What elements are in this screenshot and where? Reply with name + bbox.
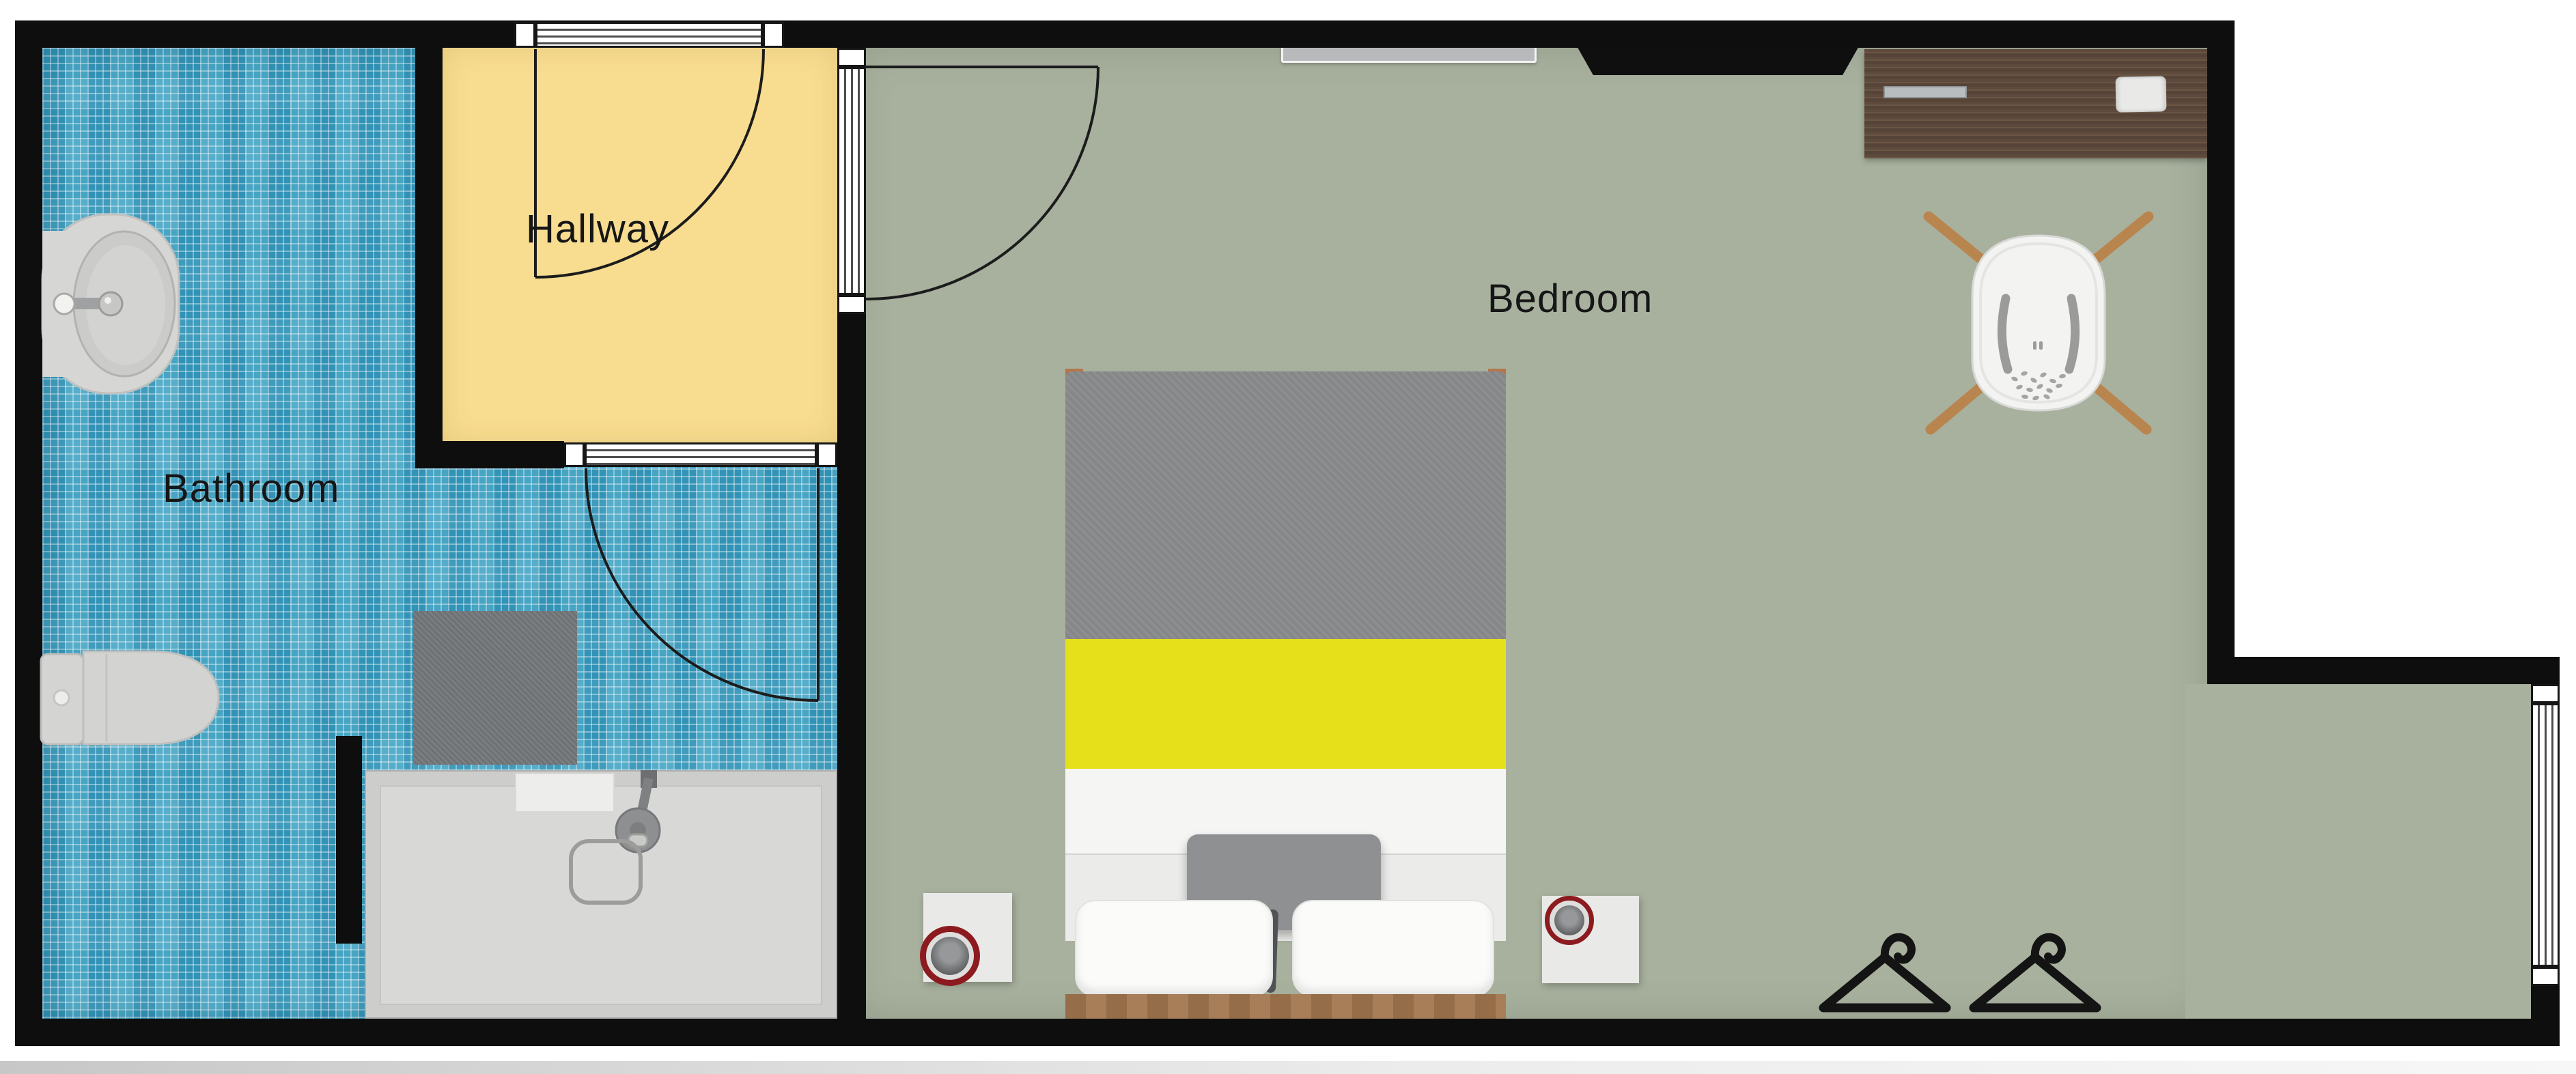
double-bed[interactable] bbox=[1065, 369, 1506, 1019]
wall-hallway-left bbox=[415, 48, 443, 468]
bedroom-door-jamb-top bbox=[837, 48, 866, 67]
right-window-jamb-top bbox=[2531, 684, 2560, 703]
bathroom-door-jamb-right bbox=[817, 442, 837, 467]
wall-tv[interactable] bbox=[1576, 45, 1860, 75]
bed-headboard bbox=[1065, 994, 1506, 1019]
right-window[interactable] bbox=[2531, 703, 2560, 967]
hallway-label: Hallway bbox=[526, 206, 669, 252]
bathroom-door[interactable] bbox=[585, 442, 817, 467]
wall-step bbox=[2207, 657, 2560, 684]
wall-right-upper bbox=[2207, 20, 2235, 684]
bed-duvet bbox=[1065, 371, 1506, 639]
bedroom-floor-nook[interactable] bbox=[2185, 684, 2531, 1019]
entry-door-jamb-right bbox=[763, 22, 784, 48]
bed-accent-runner bbox=[1065, 639, 1506, 769]
wall-left bbox=[15, 20, 42, 1046]
bedroom-label: Bedroom bbox=[1487, 276, 1653, 322]
entry-door-jamb-left bbox=[514, 22, 535, 48]
bath-mat[interactable] bbox=[413, 611, 577, 765]
wall-shower-partition bbox=[336, 736, 362, 944]
bedroom-door[interactable] bbox=[837, 67, 866, 295]
bedroom-door-jamb-bottom bbox=[837, 295, 866, 314]
wall-bottom bbox=[15, 1019, 2560, 1046]
bed-pillow-left bbox=[1075, 900, 1273, 997]
entry-door[interactable] bbox=[535, 22, 763, 48]
bathroom-door-jamb-left bbox=[564, 442, 585, 467]
wall-bathroom-bedroom bbox=[837, 314, 866, 1019]
speaker-left[interactable] bbox=[931, 937, 969, 975]
floor-plan: Hallway Bathroom Bedroom bbox=[0, 0, 2576, 1074]
wall-top bbox=[15, 20, 2235, 48]
desk-handle bbox=[1884, 86, 1967, 98]
shower-tray-inner bbox=[380, 785, 822, 1005]
bathroom-label: Bathroom bbox=[163, 466, 339, 511]
shower-shelf bbox=[515, 773, 615, 812]
bed-pillow-right bbox=[1292, 900, 1494, 997]
wall-right-corner bbox=[2531, 986, 2560, 1019]
desk-paper[interactable] bbox=[2116, 76, 2167, 112]
speaker-right[interactable] bbox=[1554, 905, 1584, 935]
bottom-shadow bbox=[0, 1061, 2576, 1074]
bedroom-floor[interactable] bbox=[852, 48, 2207, 1019]
right-window-jamb-bottom bbox=[2531, 967, 2560, 986]
wall-hallway-bottom bbox=[415, 441, 564, 468]
